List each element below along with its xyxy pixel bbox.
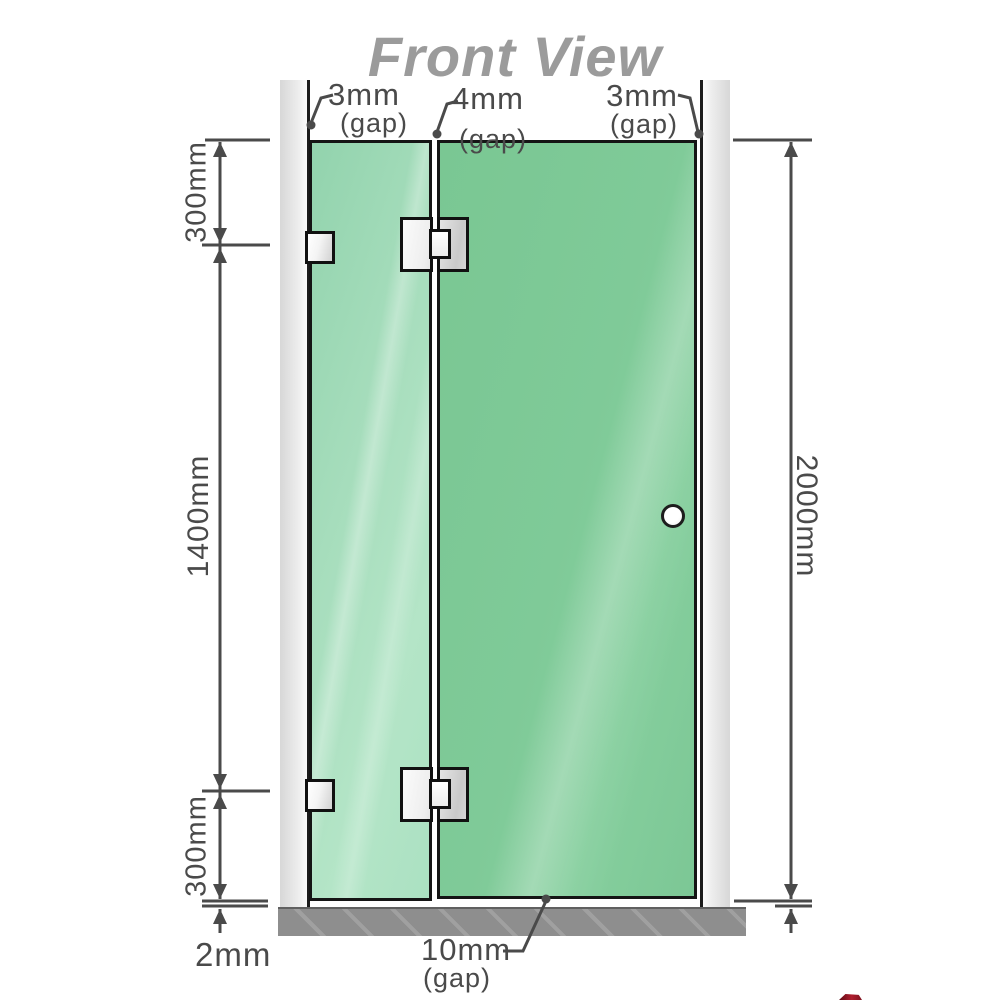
label-gap-bottom: 10mm (gap) (421, 934, 511, 992)
label-gap-top-middle: 4mm (gap) (452, 83, 527, 153)
hinge-gap-strip (430, 258, 440, 272)
gap-value: 3mm (600, 80, 678, 111)
gap-qualifier: (gap) (328, 110, 408, 137)
wall-bracket-top-icon (305, 231, 335, 264)
label-dim-left-bottom: 300mm (181, 795, 214, 897)
hinge-pin (429, 779, 451, 809)
hinge-gap-strip (430, 808, 440, 822)
gap-value: 3mm (328, 79, 408, 110)
diagram-canvas: Front View (0, 0, 1000, 1000)
hinge-pin (429, 229, 451, 259)
gap-qualifier: (gap) (600, 111, 678, 138)
label-dim-floor-gap: 2mm (195, 936, 271, 974)
gap-value: 4mm (452, 83, 527, 114)
door-glass-panel (437, 140, 697, 899)
label-dim-left-middle: 1400mm (182, 455, 216, 578)
gap-qualifier: (gap) (452, 114, 527, 153)
right-wall (700, 80, 730, 907)
wall-bracket-bottom-icon (305, 779, 335, 812)
label-gap-top-right: 3mm (gap) (600, 80, 678, 138)
label-gap-top-left: 3mm (gap) (328, 79, 408, 137)
label-dim-right-total: 2000mm (789, 455, 823, 578)
door-knob-handle (661, 504, 685, 528)
hinge-top-icon (400, 217, 469, 272)
gap-value: 10mm (421, 934, 511, 965)
floor-base (278, 907, 746, 936)
hinge-bottom-icon (400, 767, 469, 822)
leader-gap-top-right (678, 95, 698, 132)
gap-qualifier: (gap) (421, 965, 511, 992)
watermark-fragment (839, 994, 862, 1000)
label-dim-left-top: 300mm (181, 141, 214, 243)
